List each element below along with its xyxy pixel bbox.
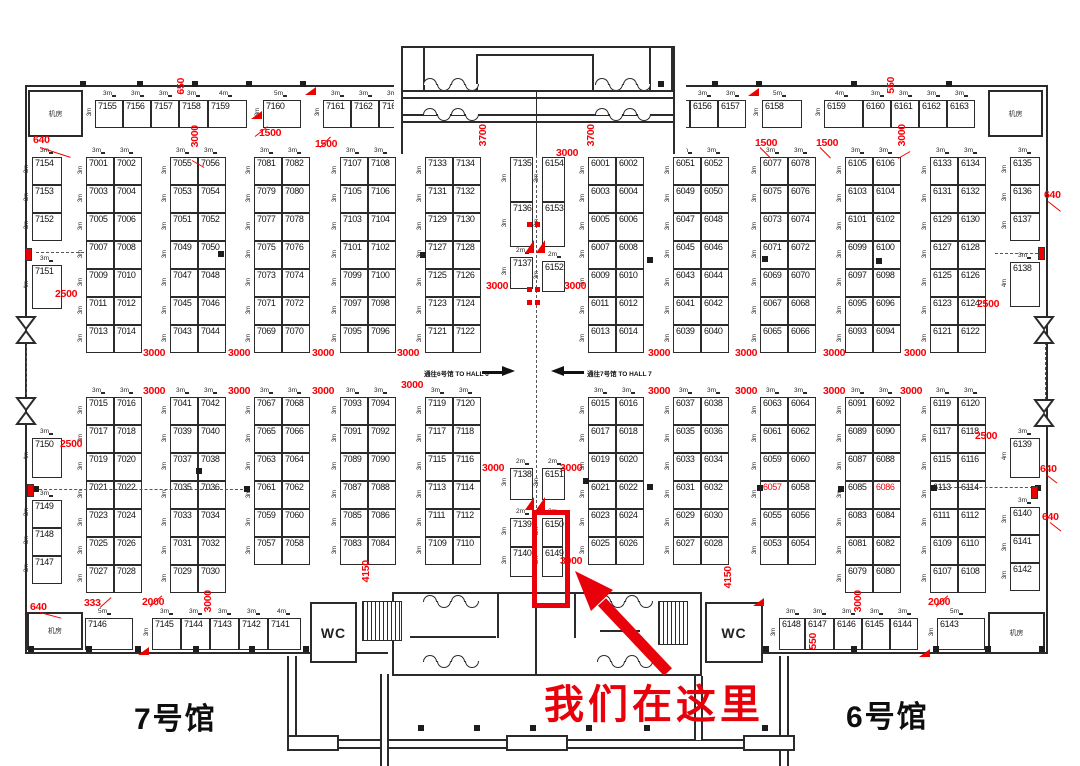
dimension-label: 640 — [33, 135, 50, 146]
dimension-label: 3000 — [190, 121, 201, 151]
red-triangle-marker — [305, 87, 316, 95]
dimension-label: 3000 — [312, 348, 334, 359]
dimension-label: 3000 — [735, 386, 757, 397]
leader-line — [1048, 201, 1061, 212]
fire-door-marker — [25, 248, 32, 261]
column-marker — [762, 256, 768, 262]
dimension-label: 3000 — [900, 386, 922, 397]
wc-room: WC — [705, 602, 763, 663]
dimension-label: 640 — [1040, 464, 1057, 475]
bottom-lobby-wall-c — [410, 636, 496, 638]
column-marker — [418, 725, 424, 731]
red-flag-marker — [525, 240, 534, 253]
door-arc-icon — [423, 595, 437, 602]
column-marker — [946, 81, 952, 87]
dimension-label: 4150 — [723, 562, 734, 592]
dimension-label: 3000 — [143, 386, 165, 397]
to-hall-6-arrow-bar — [482, 371, 502, 374]
door-arc-icon — [595, 78, 609, 85]
room-label: 机房 — [49, 109, 63, 119]
top-entrance-left-block — [401, 46, 425, 92]
bowtie-door-icon — [1033, 398, 1055, 433]
door-arc-icon — [423, 78, 437, 85]
plaza-wall-2 — [380, 674, 389, 766]
column-marker — [756, 81, 762, 87]
dimension-label: 3000 — [486, 281, 508, 292]
column-marker — [757, 485, 763, 491]
top-entrance-left-wall — [401, 46, 403, 154]
dimension-label: 3000 — [564, 281, 586, 292]
red-square-marker — [535, 222, 540, 227]
red-square-marker — [527, 300, 532, 305]
dimension-label: 2500 — [975, 431, 997, 442]
bowtie-door-icon — [1033, 315, 1055, 350]
column-marker — [647, 484, 653, 490]
room-label: WC — [321, 625, 346, 641]
red-flag-marker — [525, 497, 534, 510]
dimension-label: 3000 — [897, 120, 908, 150]
dimension-label: 4150 — [361, 556, 372, 586]
dimension-label: 3700 — [586, 120, 597, 150]
column-marker — [249, 646, 255, 652]
column-marker — [876, 258, 882, 264]
utility-room: 机房 — [27, 612, 83, 650]
dimension-label: 3000 — [312, 386, 334, 397]
note-line — [34, 489, 248, 490]
dimension-label: 640 — [1042, 512, 1059, 523]
utility-room: 机房 — [988, 612, 1045, 654]
utility-room: 机房 — [28, 90, 83, 137]
dimension-label: 650 — [176, 71, 187, 101]
red-triangle-marker — [919, 649, 930, 657]
red-triangle-marker — [748, 88, 759, 96]
column-marker — [647, 257, 653, 263]
dimension-label: 3000 — [904, 348, 926, 359]
column-marker — [851, 81, 857, 87]
door-arc-icon — [451, 595, 465, 602]
note-line — [36, 252, 84, 253]
room-label: 机房 — [1010, 628, 1024, 638]
wc-room: WC — [310, 602, 357, 663]
dimension-label: 3000 — [482, 463, 504, 474]
column-marker — [1039, 646, 1045, 652]
dimension-label: 333 — [84, 598, 101, 609]
dimension-label: 1500 — [755, 138, 777, 149]
dimension-label: 3000 — [228, 348, 250, 359]
dimension-label: 2500 — [60, 439, 82, 450]
dimension-label: 3000 — [853, 586, 864, 616]
column-marker — [985, 646, 991, 652]
facade-cap-center — [506, 735, 568, 751]
dimension-label: 2500 — [55, 289, 77, 300]
red-flag-marker — [536, 240, 545, 253]
dimension-label: 3000 — [397, 348, 419, 359]
dimension-label: 550 — [886, 70, 897, 100]
door-arc-icon — [451, 655, 465, 662]
column-marker — [838, 486, 844, 492]
door-arc-icon — [623, 78, 637, 85]
left-wall-dashed-line — [26, 345, 27, 400]
to-hall-7-sign: 通往7号馆 TO HALL 7 — [587, 368, 652, 378]
dimension-label: 1500 — [816, 138, 838, 149]
column-marker — [933, 646, 939, 652]
right-wall-dashed-line — [1045, 342, 1046, 400]
column-marker — [420, 252, 426, 258]
dimension-label: 3000 — [203, 586, 214, 616]
dimension-label: 3000 — [823, 348, 845, 359]
door-arc-icon — [595, 108, 609, 115]
room-label: WC — [721, 625, 746, 641]
leader-line — [1050, 522, 1062, 531]
dimension-label: 2000 — [928, 597, 950, 608]
to-hall-6-arrow-icon — [502, 366, 515, 376]
red-triangle-marker — [753, 598, 764, 606]
dimension-label: 2000 — [142, 597, 164, 608]
red-square-marker — [535, 287, 540, 292]
column-marker — [28, 646, 34, 652]
red-square-marker — [527, 222, 532, 227]
to-hall-7-arrow-bar — [564, 371, 584, 374]
room-label: 机房 — [1009, 109, 1023, 119]
column-marker — [583, 478, 589, 484]
column-marker — [196, 468, 202, 474]
dimension-label: 1500 — [315, 139, 337, 150]
column-marker — [931, 485, 937, 491]
room-label: 机房 — [48, 626, 62, 636]
note-line — [995, 253, 1043, 254]
column-marker — [193, 646, 199, 652]
hall-7-label: 7号馆 — [134, 694, 217, 738]
stairs-hatch — [362, 601, 402, 641]
top-entrance-right-wall — [673, 46, 675, 154]
dimension-label: 3000 — [401, 380, 423, 391]
dimension-label: 640 — [1044, 190, 1061, 201]
facade-cap-right — [743, 735, 795, 751]
red-triangle-marker — [138, 647, 149, 655]
dimension-label: 3000 — [823, 386, 845, 397]
dimension-label: 3000 — [228, 386, 250, 397]
column-marker — [137, 81, 143, 87]
dimension-label: 3700 — [478, 120, 489, 150]
column-marker — [851, 646, 857, 652]
column-marker — [712, 81, 718, 87]
utility-room: 机房 — [988, 90, 1043, 137]
column-marker — [763, 646, 769, 652]
door-arc-icon — [423, 655, 437, 662]
plaza-wall-1 — [287, 656, 297, 739]
column-marker — [246, 81, 252, 87]
note-line — [934, 487, 1038, 488]
door-arc-icon — [623, 108, 637, 115]
we-are-here-banner: 我们在这里 — [544, 672, 764, 730]
door-arc-icon — [451, 78, 465, 85]
dimension-label: 3000 — [648, 386, 670, 397]
top-entrance-lobby — [476, 54, 594, 92]
red-triangle-marker — [251, 111, 262, 119]
red-square-marker — [527, 287, 532, 292]
red-square-marker — [535, 300, 540, 305]
location-arrow-icon — [530, 555, 680, 680]
column-marker — [658, 81, 664, 87]
red-flag-marker — [536, 497, 545, 510]
dimension-label: 3000 — [556, 148, 578, 159]
exhibition-floor-plan: 通往6号馆 TO HALL 6 通往7号馆 TO HALL 7 7号馆 6号馆 … — [0, 0, 1080, 766]
column-marker — [192, 81, 198, 87]
dimension-label: 3000 — [560, 463, 582, 474]
dimension-label: 640 — [30, 602, 47, 613]
column-marker — [303, 646, 309, 652]
hall-6-label: 6号馆 — [846, 692, 929, 736]
dimension-label: 1500 — [259, 128, 281, 139]
bowtie-door-icon — [15, 396, 37, 431]
fire-door-marker — [1038, 247, 1045, 260]
column-marker — [80, 81, 86, 87]
center-aisle-line — [536, 155, 537, 513]
bowtie-door-icon — [15, 315, 37, 350]
column-marker — [218, 251, 224, 257]
bottom-lobby-wall-a — [497, 592, 499, 638]
column-marker — [474, 725, 480, 731]
column-marker — [86, 646, 92, 652]
dimension-label: 2500 — [977, 299, 999, 310]
dimension-label: 3000 — [735, 348, 757, 359]
fire-door-marker — [27, 484, 34, 497]
top-center-wall — [536, 92, 537, 155]
facade-cap-left — [287, 735, 339, 751]
to-hall-6-sign: 通往6号馆 TO HALL 6 — [424, 368, 489, 378]
dimension-label: 3000 — [648, 348, 670, 359]
top-entrance-top-wall — [401, 46, 675, 48]
dimension-label: 550 — [808, 626, 819, 656]
door-arc-icon — [423, 108, 437, 115]
fire-door-marker — [1031, 486, 1038, 499]
column-marker — [244, 486, 250, 492]
door-arc-icon — [451, 108, 465, 115]
dimension-label: 3000 — [143, 348, 165, 359]
column-marker — [530, 725, 536, 731]
to-hall-7-arrow-icon — [551, 366, 564, 376]
